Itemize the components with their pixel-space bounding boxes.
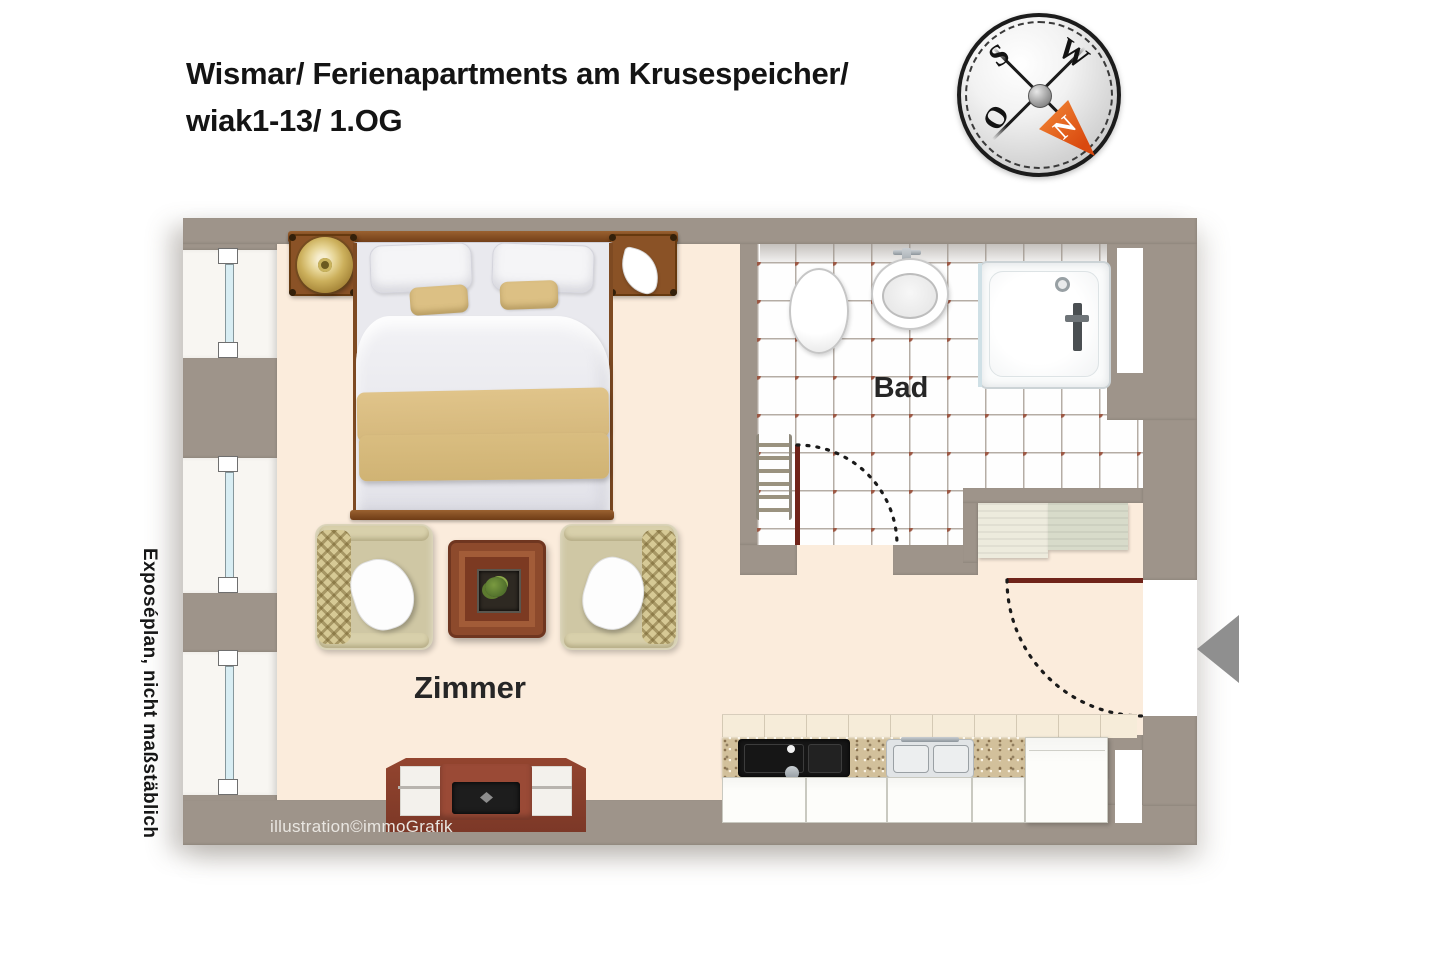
room-label-living: Zimmer	[390, 670, 550, 706]
sink-detail	[787, 745, 795, 753]
nightstand-knob	[670, 289, 677, 296]
kitchen-backsplash	[722, 714, 1137, 738]
window-frame	[218, 456, 238, 472]
compass-icon: S W O N	[957, 13, 1121, 177]
armchair-cushion	[317, 530, 351, 644]
window-frame	[218, 577, 238, 593]
bed-blanket	[359, 433, 609, 482]
armchair-left	[315, 524, 433, 650]
plant	[485, 577, 507, 597]
armchair-right	[560, 524, 678, 650]
fridge-door-seam	[1029, 750, 1105, 751]
wardrobe-shelf	[978, 503, 1048, 558]
entrance-arrow-icon	[1197, 615, 1239, 683]
fridge	[1025, 737, 1108, 823]
wall-niche	[1115, 750, 1142, 823]
cooktop-burner	[893, 745, 929, 773]
cooktop-burner	[933, 745, 969, 773]
accent-pillow	[409, 284, 469, 316]
kitchen-cabinet	[887, 777, 972, 823]
nightstand-knob	[289, 289, 296, 296]
shower	[979, 261, 1111, 389]
wall-left-segment	[183, 593, 277, 652]
lamp-core	[318, 258, 332, 272]
table-lamp	[297, 237, 353, 293]
floor-plan: Bad	[183, 218, 1197, 845]
compass-hub	[1028, 84, 1052, 108]
shower-fixture	[1065, 315, 1089, 322]
window-glass	[225, 666, 234, 781]
page-title-line1: Wismar/ Ferienapartments am Krusespeiche…	[186, 50, 849, 97]
wall-right-bottom	[1143, 716, 1197, 806]
washbasin-bowl	[882, 273, 938, 319]
sideboard-panel	[526, 766, 572, 816]
nightstand-knob	[609, 234, 616, 241]
kitchen-sink	[738, 739, 850, 777]
coffee-table	[448, 540, 546, 638]
wall-wardrobe-niche-side	[963, 503, 978, 563]
wall-shadow	[760, 244, 1107, 262]
shower-fixture	[1073, 303, 1082, 351]
window-glass	[225, 472, 234, 579]
window-frame	[218, 779, 238, 795]
nightstand-knob	[289, 234, 296, 241]
room-label-bathroom: Bad	[841, 372, 961, 405]
nightstand-knob	[670, 234, 677, 241]
page-title-line2: wiak1-13/ 1.OG	[186, 97, 849, 144]
shower-drain	[1055, 277, 1070, 292]
entrance-door-swing-arc	[1005, 578, 1147, 720]
wall-left-segment	[183, 358, 277, 458]
toilet	[789, 268, 849, 354]
wardrobe-shelf	[1048, 503, 1128, 550]
scale-disclaimer: Exposéplan, nicht maßstäblich	[138, 548, 160, 848]
bathroom-tile-floor	[963, 420, 1143, 488]
wall-niche	[1117, 248, 1143, 373]
washbasin	[871, 258, 949, 330]
page-title: Wismar/ Ferienapartments am Krusespeiche…	[186, 50, 849, 144]
window-frame	[218, 248, 238, 264]
kitchen-cabinet	[722, 777, 806, 823]
bathroom-door-swing-arc	[793, 443, 901, 551]
cooktop-handle	[901, 737, 959, 742]
wall-right-middle	[1143, 420, 1197, 580]
wall-wardrobe-niche-top	[963, 488, 1143, 503]
kitchen-cabinet	[806, 777, 887, 823]
nightstand-knob	[350, 234, 357, 241]
illustration-credit: illustration©immoGrafik	[270, 817, 453, 837]
cooktop	[886, 739, 974, 778]
window-frame	[218, 342, 238, 358]
page: { "header": { "title_line1": "Wismar/ Fe…	[0, 0, 1440, 960]
bed-footboard	[350, 510, 614, 520]
towel-radiator	[756, 434, 792, 520]
sink-basin	[808, 744, 842, 773]
wall-bathroom-bottom-left	[740, 545, 797, 575]
armchair-cushion	[642, 530, 676, 644]
armchair-pillow	[343, 550, 422, 637]
shower-glass	[978, 263, 982, 387]
window-frame	[218, 650, 238, 666]
accent-pillow	[500, 280, 559, 310]
shower-tray	[989, 271, 1099, 377]
window-glass	[225, 264, 234, 344]
kitchen-cabinet	[972, 777, 1025, 823]
